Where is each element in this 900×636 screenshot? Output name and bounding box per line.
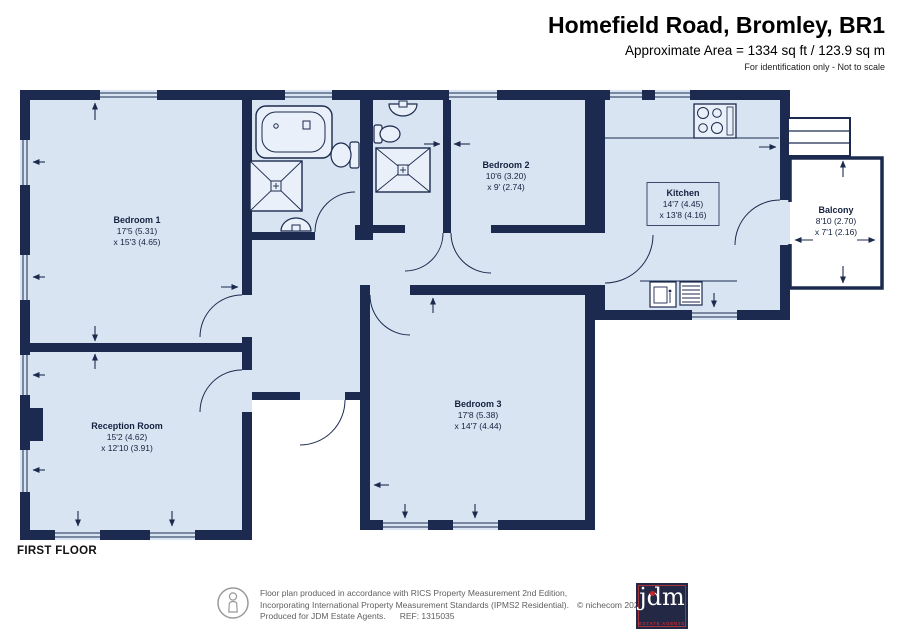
room-dim: 17'5 (5.31) <box>113 226 160 237</box>
page-title: Homefield Road, Bromley, BR1 <box>548 12 885 39</box>
hob-icon <box>694 104 736 138</box>
room-name: Bedroom 2 <box>482 160 529 171</box>
person-icon <box>216 586 252 627</box>
room-dim: 10'6 (3.20) <box>482 171 529 182</box>
room-dim: x 15'3 (4.65) <box>113 237 160 248</box>
room-dim: 14'7 (4.45) <box>660 199 707 210</box>
room-dim: 8'10 (2.70) <box>815 216 857 227</box>
room-name: Reception Room <box>91 421 163 432</box>
kitchen-sink-icon <box>650 282 676 307</box>
room-label-kitchen: Kitchen 14'7 (4.45) x 13'8 (4.16) <box>647 182 720 226</box>
room-dim: x 12'10 (3.91) <box>91 443 163 454</box>
room-dim: 17'8 (5.38) <box>454 410 501 421</box>
shower-icon <box>250 161 302 211</box>
room-name: Bedroom 1 <box>113 215 160 226</box>
jdm-logo: jdm ESTATE AGENTS <box>636 583 688 629</box>
jdm-logo-dot <box>650 591 655 596</box>
room-dim: x 9' (2.74) <box>482 182 529 193</box>
floor-label: FIRST FLOOR <box>17 545 97 557</box>
disclaimer-line-3: Produced for JDM Estate Agents. <box>260 611 386 621</box>
header: Homefield Road, Bromley, BR1 Approximate… <box>548 12 885 72</box>
room-dim: x 14'7 (4.44) <box>454 421 501 432</box>
ensuite-toilet-icon <box>374 125 400 143</box>
room-label-reception-room: Reception Room 15'2 (4.62) x 12'10 (3.91… <box>91 421 163 453</box>
jdm-logo-text: jdm <box>636 584 688 610</box>
approximate-area: Approximate Area = 1334 sq ft / 123.9 sq… <box>548 43 885 58</box>
ensuite-shower-icon <box>376 148 430 192</box>
disclaimer-line-1: Floor plan produced in accordance with R… <box>260 588 646 600</box>
room-dim: 15'2 (4.62) <box>91 432 163 443</box>
room-dim: x 13'8 (4.16) <box>660 210 707 221</box>
disclaimer-line-2: Incorporating International Property Mea… <box>260 600 569 610</box>
jdm-logo-subtext: ESTATE AGENTS <box>636 621 688 626</box>
room-dim: x 7'1 (2.16) <box>815 227 857 238</box>
room-name: Bedroom 3 <box>454 399 501 410</box>
room-name: Balcony <box>815 205 857 216</box>
room-label-balcony: Balcony 8'10 (2.70) x 7'1 (2.16) <box>815 205 857 237</box>
room-label-bedroom-1: Bedroom 1 17'5 (5.31) x 15'3 (4.65) <box>113 215 160 247</box>
stairs-icon <box>788 118 850 156</box>
room-name: Kitchen <box>660 188 707 199</box>
balcony-outline <box>788 118 882 288</box>
reference-number: REF: 1315035 <box>400 611 455 621</box>
room-label-bedroom-3: Bedroom 3 17'8 (5.38) x 14'7 (4.44) <box>454 399 501 431</box>
floorplan-page: Homefield Road, Bromley, BR1 Approximate… <box>0 0 900 636</box>
bathtub-icon <box>256 106 332 158</box>
appliance-icon <box>680 282 702 305</box>
floorplan-drawing <box>0 0 900 636</box>
toilet-icon <box>331 142 359 168</box>
disclaimer: Floor plan produced in accordance with R… <box>260 588 646 623</box>
identification-note: For identification only - Not to scale <box>548 62 885 72</box>
room-label-bedroom-2: Bedroom 2 10'6 (3.20) x 9' (2.74) <box>482 160 529 192</box>
